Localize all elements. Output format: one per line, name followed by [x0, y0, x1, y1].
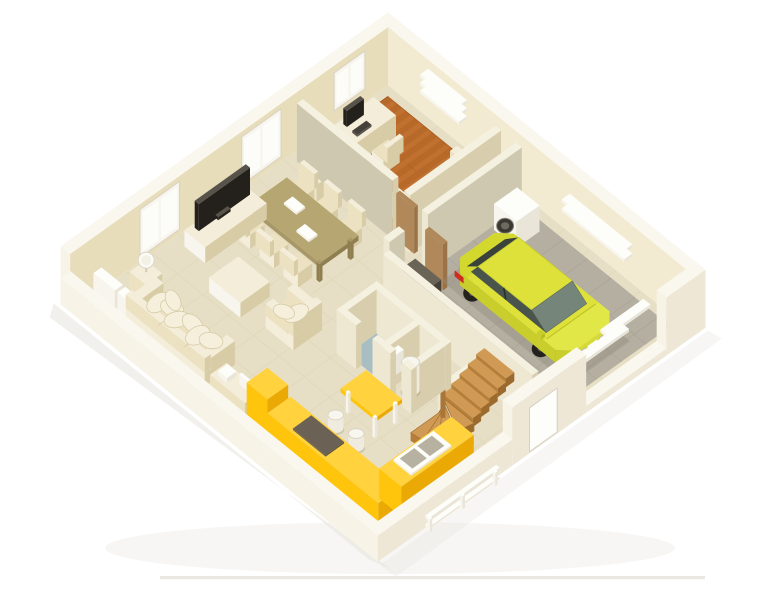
floor-plan-page	[0, 0, 780, 600]
table-leg-2	[317, 260, 323, 283]
kitchen-table-leg-3	[393, 401, 398, 425]
porch-post-2	[460, 493, 465, 510]
porch-post-1	[493, 469, 498, 486]
washing-machine-door-glass	[501, 222, 509, 229]
table-leg-3	[348, 237, 354, 260]
wall-bath-south-3	[402, 359, 416, 414]
floor-plan-3d-render	[0, 0, 780, 600]
porch-post-3	[428, 516, 433, 533]
kitchen-table-leg-2	[373, 415, 378, 439]
kitchen-table-leg-1	[346, 390, 351, 414]
